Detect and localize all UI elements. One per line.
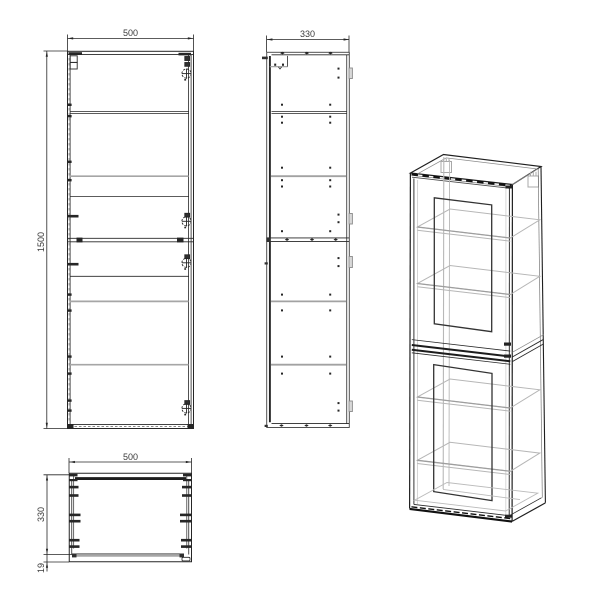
svg-text:330: 330 bbox=[300, 29, 315, 39]
svg-text:19: 19 bbox=[36, 563, 46, 573]
svg-text:500: 500 bbox=[123, 28, 138, 38]
svg-text:500: 500 bbox=[123, 452, 138, 462]
svg-text:1500: 1500 bbox=[36, 232, 46, 252]
svg-text:330: 330 bbox=[36, 507, 46, 522]
